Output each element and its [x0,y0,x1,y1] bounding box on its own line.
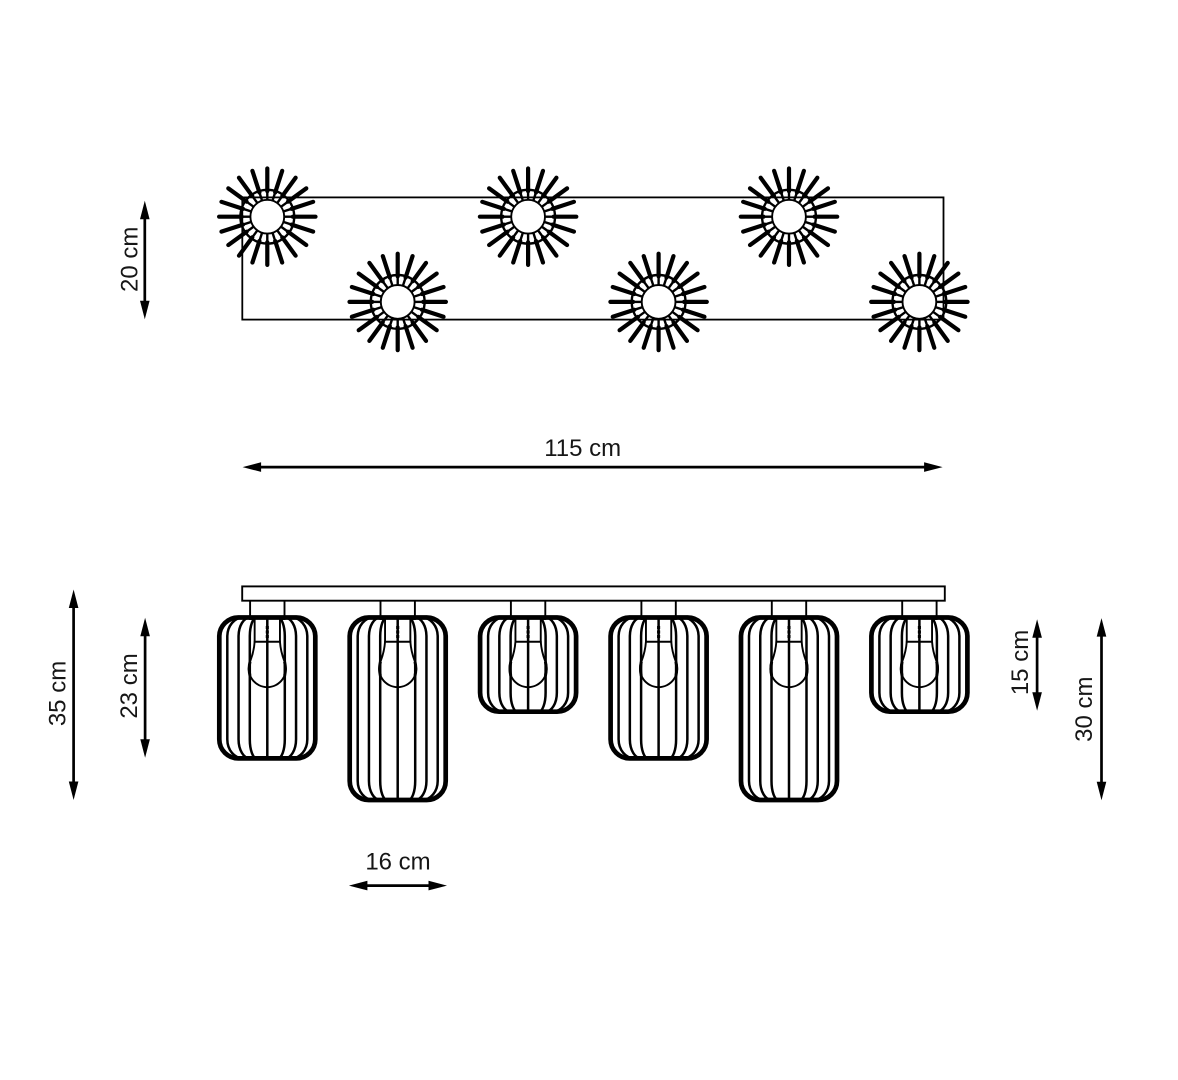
svg-text:30 cm: 30 cm [1071,677,1098,742]
svg-text:16 cm: 16 cm [365,849,430,876]
svg-text:115 cm: 115 cm [544,435,621,462]
svg-text:23 cm: 23 cm [116,653,143,718]
svg-text:35 cm: 35 cm [45,661,72,726]
svg-text:20 cm: 20 cm [116,227,143,292]
svg-text:15 cm: 15 cm [1007,630,1034,695]
